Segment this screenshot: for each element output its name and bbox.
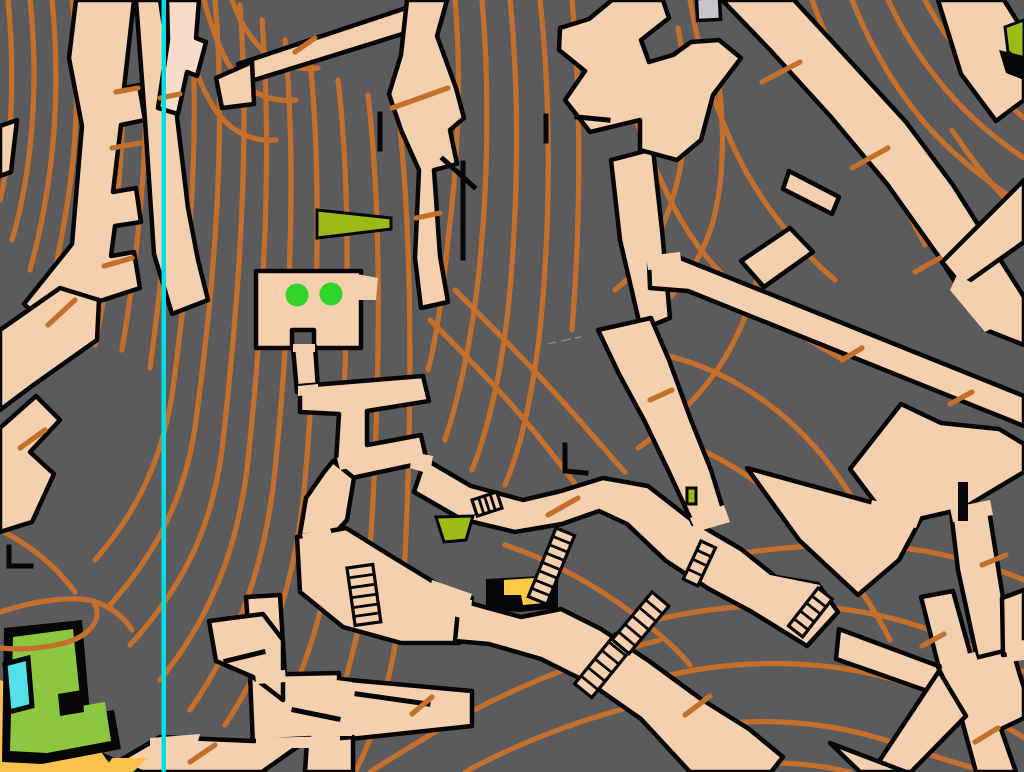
olive-bar-small bbox=[687, 488, 696, 504]
orienteering-map-canvas[interactable] bbox=[0, 0, 1024, 772]
grey-building bbox=[696, 0, 720, 21]
olive-wedge-center bbox=[436, 516, 473, 542]
water-pool bbox=[5, 658, 32, 712]
building-inner-notch bbox=[58, 690, 84, 716]
north-line bbox=[162, 0, 167, 772]
tree-dot bbox=[286, 284, 309, 307]
map-svg bbox=[0, 0, 1024, 772]
tree-dot bbox=[320, 283, 343, 306]
